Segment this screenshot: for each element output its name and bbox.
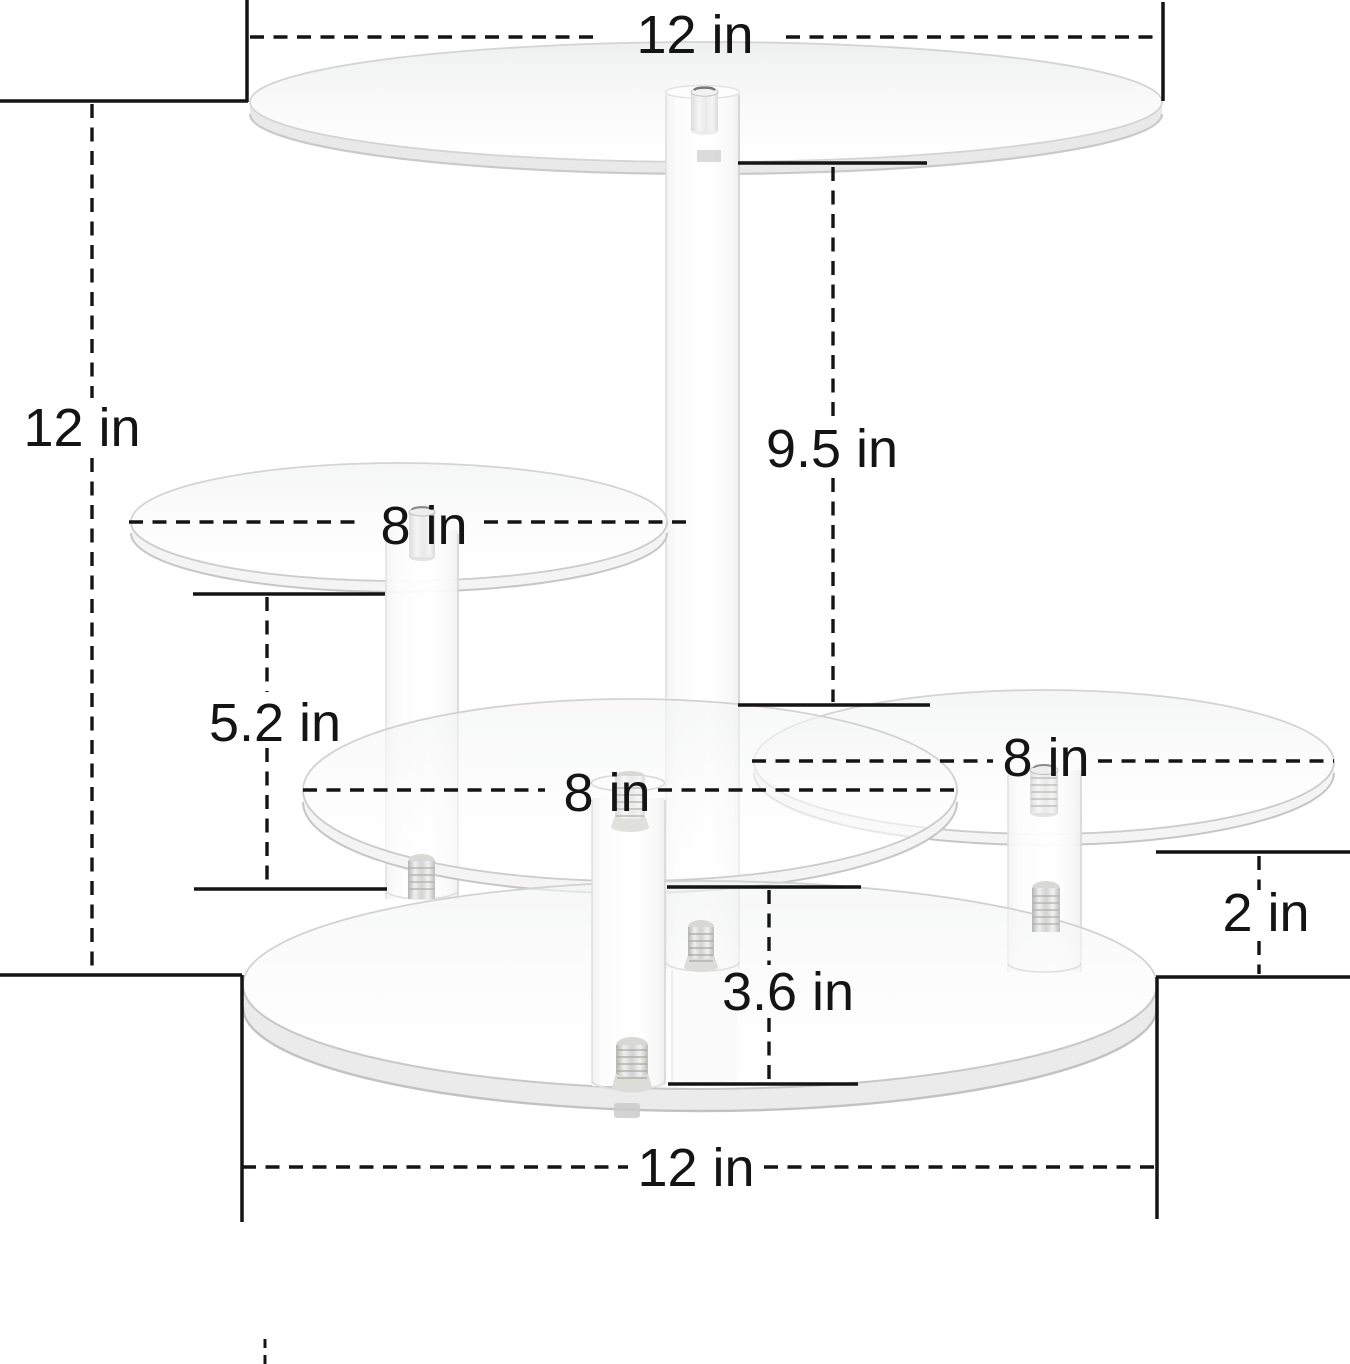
svg-text:9.5 in: 9.5 in: [766, 419, 898, 479]
svg-text:8 in: 8 in: [380, 496, 467, 556]
svg-text:5.2 in: 5.2 in: [209, 693, 341, 753]
svg-text:12 in: 12 in: [23, 398, 140, 458]
svg-text:12 in: 12 in: [636, 5, 753, 65]
svg-text:2 in: 2 in: [1222, 883, 1309, 943]
svg-text:3.6 in: 3.6 in: [722, 962, 854, 1022]
svg-text:8 in: 8 in: [1002, 728, 1089, 788]
svg-text:8 in: 8 in: [563, 763, 650, 823]
svg-text:12 in: 12 in: [637, 1138, 754, 1198]
